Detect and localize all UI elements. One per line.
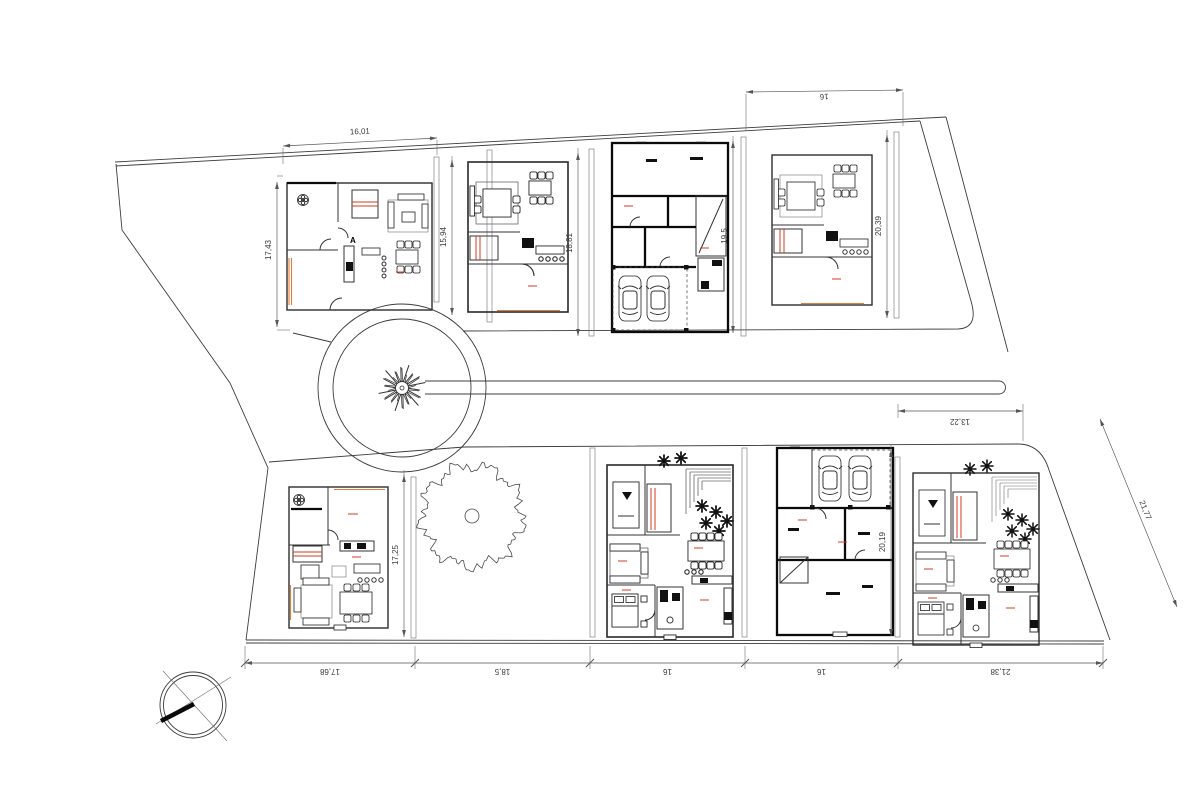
kitchen-counter xyxy=(692,576,732,584)
dimension-lot2-height-label: 18,81 xyxy=(565,232,574,253)
dimension-lot5-height: 17,25 xyxy=(391,475,406,637)
kitchen-island xyxy=(354,564,380,573)
coffee-table xyxy=(402,212,415,222)
large-garden-tree xyxy=(417,462,526,572)
site-plan-canvas: A xyxy=(0,0,1200,790)
site-boundary-west xyxy=(116,164,268,640)
street-east-west xyxy=(425,381,1006,394)
separator-wall xyxy=(742,448,747,637)
ceiling-fan-icon xyxy=(294,495,305,506)
window-accent xyxy=(289,258,292,305)
dimension-chain-label: 16 xyxy=(663,667,672,676)
car xyxy=(618,276,642,321)
separator-wall xyxy=(590,448,595,637)
ceiling-fan-icon xyxy=(298,195,309,206)
dining-table xyxy=(340,592,372,614)
site-boundary xyxy=(115,117,1104,644)
living-room-rug xyxy=(301,585,332,618)
entry-step xyxy=(833,632,847,637)
dining-table xyxy=(396,250,418,264)
dimension-lot8-side-label: 21,77 xyxy=(1137,499,1153,521)
car xyxy=(848,456,872,501)
furniture-mark xyxy=(788,528,799,531)
furniture-mark xyxy=(858,532,870,535)
house-plan-6 xyxy=(607,452,733,640)
furniture-mark xyxy=(826,592,840,595)
house-plan-7 xyxy=(777,447,893,637)
furniture-mark xyxy=(862,585,873,588)
dimension-lot1-height-left: 17,43 xyxy=(264,182,279,327)
entry-step xyxy=(334,625,346,630)
dimension-lot3-height-label: 19,5 xyxy=(720,228,729,244)
house-plan-1: A xyxy=(287,183,432,310)
dimension-lot4-height: 20,39 xyxy=(874,135,889,318)
dimension-chain-south: 17,6818,5161621,38 xyxy=(241,646,1107,676)
dimension-lot8-frontage: 13,22 xyxy=(898,409,1023,426)
north-arrow xyxy=(161,704,194,721)
dimension-lot4-height-label: 20,39 xyxy=(874,215,883,236)
house-plan-8 xyxy=(913,460,1039,648)
dimension-lot8-side: 21,77 xyxy=(1100,419,1177,607)
dimension-chain-label: 16 xyxy=(817,667,826,676)
house-plan-4 xyxy=(772,155,872,305)
furniture-mark xyxy=(646,159,657,162)
dimension-chain-label: 17,68 xyxy=(319,667,340,676)
separator-wall xyxy=(895,457,900,637)
dimension-lot7-height-label: 20,19 xyxy=(878,531,887,552)
cul-de-sac-palm-tree xyxy=(379,365,426,411)
dimension-lot8-frontage-label: 13,22 xyxy=(949,417,970,426)
north-indicator xyxy=(156,671,231,741)
staircase xyxy=(470,236,498,260)
cad-sheet: A xyxy=(0,0,1200,790)
separator-wall xyxy=(589,149,594,336)
dimension-lot5-height-label: 17,25 xyxy=(391,544,400,565)
staircase xyxy=(293,546,322,562)
dimension-lot1-width: 16,01 xyxy=(283,126,437,147)
house-plan-5 xyxy=(289,487,388,630)
separator-wall xyxy=(894,132,899,318)
separator-wall xyxy=(741,137,746,336)
dimension-lot1-height-left-label: 17,43 xyxy=(264,239,273,260)
dimension-lot2-height: 18,81 xyxy=(565,153,580,336)
site-boundary-south xyxy=(246,640,1104,641)
kitchen-sink xyxy=(357,543,366,549)
dimension-lot4-width-label: 16 xyxy=(819,92,829,101)
car xyxy=(818,456,842,501)
dimension-lot4-width: 16 xyxy=(746,88,903,101)
dimension-lot1-width-label: 16,01 xyxy=(350,126,371,136)
kitchen-sink xyxy=(346,262,353,271)
house-plan-3 xyxy=(611,142,728,333)
house-plan-2 xyxy=(468,162,568,312)
section-marker-a: A xyxy=(350,236,356,245)
dimension-lot1-height-right-label: 15,94 xyxy=(439,226,448,247)
entry-road-edge xyxy=(946,117,1008,352)
closet xyxy=(301,565,319,579)
dimension-annotations: 16,0117,4315,9418,8119,51620,3913,2221,7… xyxy=(241,88,1177,676)
dimension-lot7-height: 20,19 xyxy=(878,450,893,636)
car xyxy=(646,276,670,321)
dimension-lot1-height-right: 15,94 xyxy=(439,160,454,315)
staircase xyxy=(352,190,378,218)
dimension-chain-label: 21,38 xyxy=(990,667,1011,676)
separator-wall xyxy=(411,477,416,638)
furniture-mark xyxy=(690,157,703,160)
dimension-chain-label: 18,5 xyxy=(494,667,510,676)
lot-front-line-north xyxy=(463,121,973,331)
